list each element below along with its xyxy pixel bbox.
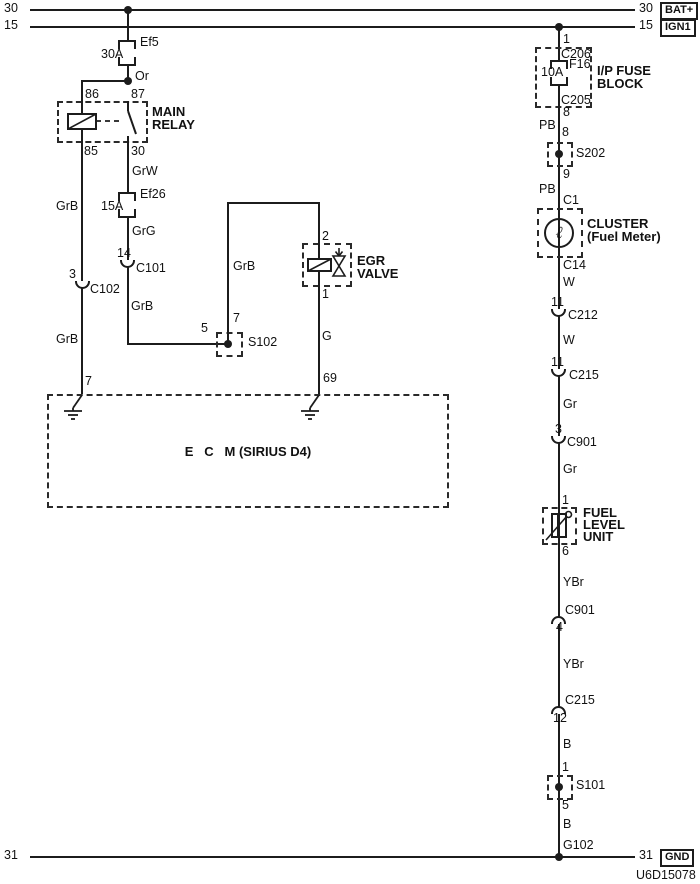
conn-c215b-pin: 12 <box>553 712 567 726</box>
connector-c101-symbol <box>120 260 135 268</box>
splice-s102-id: S102 <box>248 336 277 350</box>
wire-g <box>318 287 320 394</box>
bus-30-right-label: 30 <box>639 2 653 16</box>
wire-to-s102 <box>127 343 228 345</box>
ip-fuse-block-name-2: BLOCK <box>597 77 643 91</box>
wire-grb-left <box>81 143 83 394</box>
connector-c901-symbol <box>551 436 566 444</box>
conn-c215-pin: 11 <box>551 356 564 370</box>
s102-pin-7: 7 <box>233 312 240 326</box>
egr-valve-name-2: VALVE <box>357 267 398 281</box>
wire-pb-label-1: PB <box>539 119 556 133</box>
ground-symbol-pin7 <box>60 395 90 425</box>
relay-pin-86: 86 <box>85 88 99 102</box>
wire-grb-left-label-2: GrB <box>56 333 78 347</box>
bus-15-left-label: 15 <box>4 19 18 33</box>
connector-c102-symbol <box>75 281 90 289</box>
wire-grb-egr <box>227 202 229 345</box>
bus-30-left-label: 30 <box>4 2 18 16</box>
relay-pin-85: 85 <box>84 145 98 159</box>
relay-coil-and-switch-symbol <box>57 101 148 143</box>
conn-c102-id: C102 <box>90 283 120 297</box>
diagram-id: U6D15078 <box>636 869 696 883</box>
bus-31-right-label: 31 <box>639 849 653 863</box>
wire-gr-label-1: Gr <box>563 398 577 412</box>
wire-g-label: G <box>322 330 332 344</box>
relay-pin-30: 30 <box>131 145 145 159</box>
conn-c102-pin: 3 <box>69 268 76 282</box>
conn-c212-pin: 11 <box>551 296 564 310</box>
ecm-pin-69: 69 <box>323 372 337 386</box>
wire-w-label-2: W <box>563 334 575 348</box>
conn-c14-id: C14 <box>563 259 586 273</box>
bus-15-line <box>30 26 635 28</box>
ign1-tag: IGN1 <box>660 19 696 37</box>
conn-c901b-pin: 4 <box>556 621 563 635</box>
wire-b-label-1: B <box>563 738 571 752</box>
cluster-name-2: (Fuel Meter) <box>587 230 661 244</box>
junction-dot-g102 <box>555 853 563 861</box>
bus-15-right-label: 15 <box>639 19 653 33</box>
egr-pin-1: 1 <box>322 288 329 302</box>
s101-pin-5: 5 <box>562 799 569 813</box>
wire-grw-label: GrW <box>132 165 158 179</box>
wire-grg-grb <box>127 218 129 345</box>
flu-pin-6: 6 <box>562 545 569 559</box>
wire-or-branch <box>81 80 128 82</box>
wire-w-label-1: W <box>563 276 575 290</box>
connector-c215-symbol <box>551 369 566 377</box>
main-relay-name-2: RELAY <box>152 118 195 132</box>
s101-pin-1: 1 <box>562 761 569 775</box>
flu-pin-1: 1 <box>562 494 569 508</box>
splice-s202-id: S202 <box>576 147 605 161</box>
wire-gr-label-2: Gr <box>563 463 577 477</box>
wire-grg-label: GrG <box>132 225 156 239</box>
fuse-ef26-rating-label: 15A <box>101 200 123 214</box>
conn-c1-id: C1 <box>563 194 579 208</box>
splice-s101-id: S101 <box>576 779 605 793</box>
splice-s101-dot <box>555 783 563 791</box>
conn-c101-id: C101 <box>136 262 166 276</box>
wire-fuel-main <box>558 86 560 857</box>
relay-pin-87: 87 <box>131 88 145 102</box>
conn-c901-id: C901 <box>567 436 597 450</box>
wire-bat-to-ef5 <box>127 10 129 40</box>
wire-egr-pin2 <box>318 202 320 246</box>
wire-grb-left-label-1: GrB <box>56 200 78 214</box>
s102-pin-5: 5 <box>201 322 208 336</box>
wire-grw <box>127 143 129 192</box>
ground-symbol-pin69 <box>297 395 327 425</box>
conn-c215b-id: C215 <box>565 694 595 708</box>
egr-pin-2: 2 <box>322 230 329 244</box>
fuel-level-sender-symbol <box>542 507 577 545</box>
fuse-ef26-id-label: Ef26 <box>140 188 166 202</box>
connector-c212-symbol <box>551 309 566 317</box>
bus-31-left-label: 31 <box>4 849 18 863</box>
bus-31-line <box>30 856 635 858</box>
conn-c215-id: C215 <box>569 369 599 383</box>
egr-valve-symbol <box>302 243 352 287</box>
ecm-label: E C M (SIRIUS D4) <box>47 444 449 459</box>
fuel-gauge-symbol: ℓ <box>544 218 574 248</box>
wire-egr-top <box>227 202 320 204</box>
ecm-pin-7: 7 <box>85 375 92 389</box>
bus-30-line <box>30 9 635 11</box>
wire-b-label-2: B <box>563 818 571 832</box>
conn-c901b-id: C901 <box>565 604 595 618</box>
wire-grb-mid-label: GrB <box>131 300 153 314</box>
conn-c212-id: C212 <box>568 309 598 323</box>
fuse-ef5-id-label: Ef5 <box>140 36 159 50</box>
fuse-block-pin-1: 1 <box>563 33 570 47</box>
conn-c901-pin: 3 <box>555 423 562 437</box>
fuse-ef5-rating-label: 30A <box>101 48 123 62</box>
pin-8-bottom: 8 <box>562 126 569 140</box>
pin-8-top: 8 <box>563 106 570 120</box>
fuse-f16-rating-label: 10A <box>541 66 563 80</box>
wire-grb-egr-label: GrB <box>233 260 255 274</box>
ground-g102-label: G102 <box>563 839 594 853</box>
fuse-f16-id-label: F16 <box>569 58 591 72</box>
splice-s202-dot <box>555 150 563 158</box>
wire-ybr-label-2: YBr <box>563 658 584 672</box>
wire-ybr-label-1: YBr <box>563 576 584 590</box>
wire-or-label: Or <box>135 70 149 84</box>
bat-plus-tag: BAT+ <box>660 2 698 20</box>
pin-9: 9 <box>563 168 570 182</box>
wiring-diagram: 30 30 BAT+ 15 15 IGN1 31 31 GND U6D15078… <box>0 0 700 884</box>
conn-c101-pin: 14 <box>117 247 131 261</box>
fuel-level-unit-name-3: UNIT <box>583 530 613 544</box>
gnd-tag: GND <box>660 849 694 867</box>
wire-pb-label-2: PB <box>539 183 556 197</box>
